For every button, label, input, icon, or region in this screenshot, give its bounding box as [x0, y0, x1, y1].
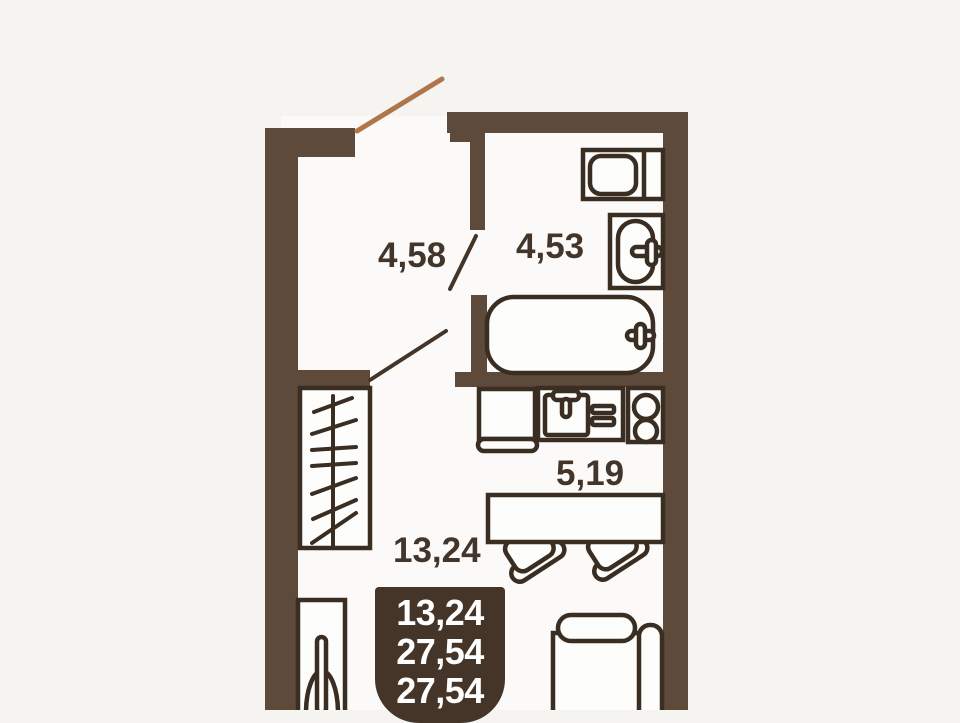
stove-icon: [628, 388, 663, 442]
bathroom-sink-icon: [610, 215, 663, 288]
wardrobe-icon: [300, 388, 370, 548]
kitchen-area-label: 5,19: [556, 454, 624, 494]
wall-bath-partition-upper: [470, 133, 485, 230]
area-summary-badge: 13,24 27,54 27,54: [375, 587, 505, 723]
wall-top-right: [447, 112, 688, 133]
fridge-icon: [478, 389, 537, 451]
floorplan-page: { "floorplan": { "type": "studio-apartme…: [0, 0, 960, 710]
floor-cabinet-icon: [298, 600, 345, 710]
bathtub-icon: [487, 297, 654, 373]
wall-top-left: [265, 128, 355, 157]
wall-bath-partition-lower: [471, 295, 487, 373]
hallway-area-label: 4,58: [378, 236, 446, 276]
bathroom-area-label: 4,53: [516, 227, 584, 267]
living-room-area-label: 13,24: [393, 531, 481, 571]
kitchen-sink-icon: [538, 388, 623, 440]
wall-left: [265, 128, 298, 710]
wall-right: [663, 112, 688, 710]
badge-living-area: 13,24: [375, 593, 505, 632]
bed-icon: [553, 615, 662, 710]
wall-wardrobe: [265, 370, 370, 386]
toilet-icon: [583, 150, 663, 199]
badge-total-area-2: 27,54: [375, 671, 505, 710]
badge-total-area: 27,54: [375, 632, 505, 671]
dining-table-icon: [488, 495, 663, 542]
